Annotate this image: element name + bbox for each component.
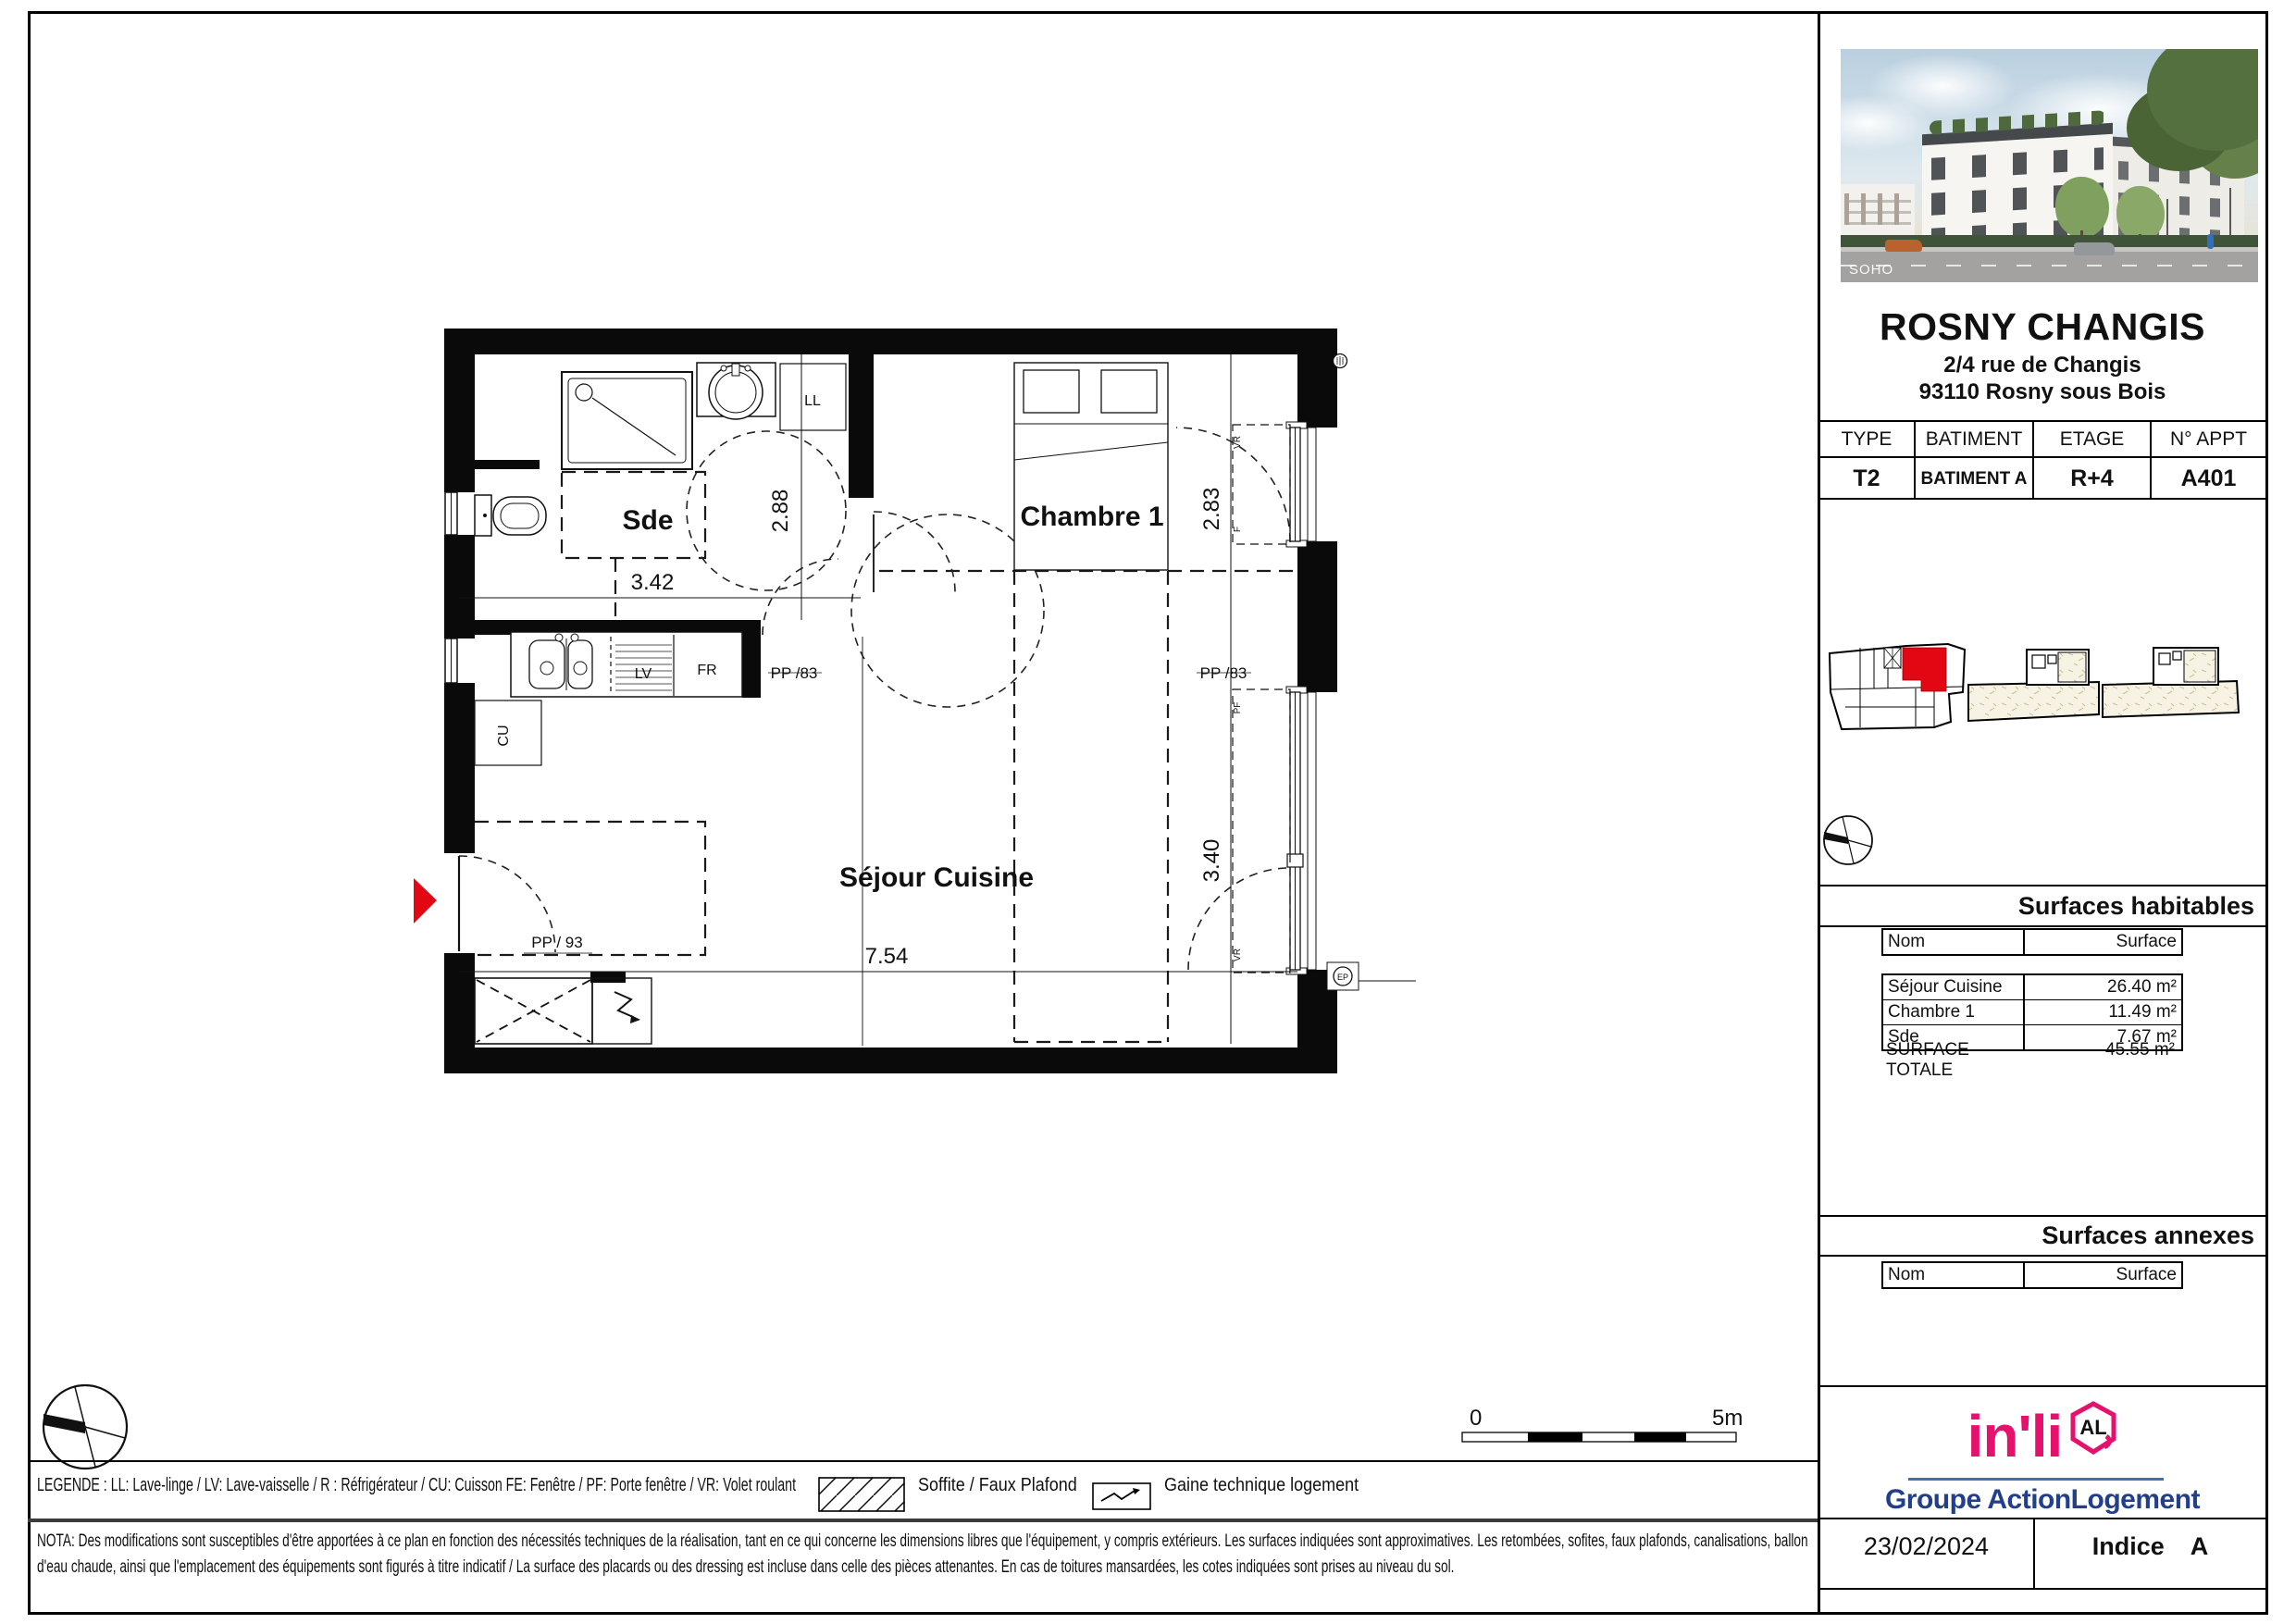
car [2074, 242, 2115, 255]
indice-value: A [2191, 1532, 2209, 1560]
row-nom: Chambre 1 [1883, 1000, 2023, 1024]
entrance-arrow-icon [414, 878, 437, 924]
gaine-swatch-icon [1092, 1482, 1151, 1510]
street-light [2229, 188, 2231, 240]
window-toilet [445, 492, 457, 535]
surface-totale-row: SURFACE TOTALE 45.55 m² [1881, 1040, 2183, 1081]
key-plan-compass-icon [1824, 816, 1872, 864]
surfaces-annexes-title: Surfaces annexes [1819, 1221, 2265, 1250]
section-line [1819, 885, 2265, 886]
label-ll: LL [804, 393, 821, 409]
label-cu: CU [496, 725, 512, 746]
project-title: ROSNY CHANGIS [1819, 305, 2265, 349]
indice-label: Indice [2092, 1532, 2165, 1560]
door-label-pp93: PP / 93 [531, 934, 582, 951]
toilet [475, 495, 546, 536]
scale-end: 5m [1712, 1406, 1743, 1431]
group-name: Groupe ActionLogement [1819, 1484, 2265, 1516]
vent-symbol [1334, 354, 1347, 368]
info-header-etage: ETAGE [2034, 422, 2152, 458]
info-value-batiment: BATIMENT A [1916, 458, 2034, 500]
panel-divider [1818, 11, 1820, 1615]
label-f-chambre: F [1233, 527, 1243, 532]
plan-date: 23/02/2024 [1819, 1532, 2033, 1561]
nota-top-line [28, 1519, 1818, 1522]
dim-754: 7.54 [865, 944, 909, 969]
gaine-technique-box [475, 978, 652, 1044]
project-address: 2/4 rue de Changis 93110 Rosny sous Bois [1819, 352, 2265, 405]
washbasin [697, 363, 776, 419]
label-vr-sejour: VR [1233, 948, 1243, 961]
nota-text: NOTA: Des modifications sont susceptible… [37, 1529, 1809, 1581]
dim-340: 3.40 [1199, 839, 1224, 883]
soffite-label: Soffite / Faux Plafond [918, 1475, 1077, 1496]
info-header-batiment: BATIMENT [1916, 422, 2034, 458]
surfaces-habitables-title: Surfaces habitables [1819, 892, 2265, 921]
north-compass-icon [43, 1385, 127, 1469]
total-label: SURFACE TOTALE [1881, 1040, 2021, 1081]
legend-text: LEGENDE : LL: Lave-linge / LV: Lave-vais… [37, 1475, 813, 1496]
dim-283: 2.83 [1199, 488, 1224, 531]
surfaces-habitables-header: Nom Surface [1881, 928, 2183, 956]
section-line [1819, 1215, 2265, 1217]
room-label-sde: Sde [622, 505, 673, 536]
inli-logo: in'li AL [1819, 1394, 2265, 1479]
label-pf-sejour: PF [1233, 702, 1243, 714]
indice: IndiceA [2035, 1532, 2265, 1561]
scale-bar: 0 5m [1462, 1406, 1743, 1442]
floorplan-sheet: Sde Chambre 1 Séjour Cuisine 3.42 2.88 2… [0, 0, 2296, 1624]
bed [1014, 363, 1168, 570]
address-line1: 2/4 rue de Changis [1819, 352, 2265, 378]
door-label-pp83-a: PP /83 [771, 664, 818, 682]
window-kitchen [445, 638, 457, 683]
kitchen-counter [475, 632, 742, 765]
building-photo: SOHO [1841, 49, 2258, 282]
row-surface: 26.40 m² [2023, 975, 2181, 999]
window-sejour-pf [1233, 687, 1316, 974]
label-fr: FR [697, 663, 716, 678]
col-surface: Surface [2023, 1263, 2181, 1287]
footer-line [1819, 1518, 2265, 1519]
shower [562, 372, 692, 469]
tree [2116, 186, 2165, 242]
tree [2055, 177, 2109, 238]
section-line [1819, 1255, 2265, 1257]
al-badge-icon: AL [2069, 1401, 2117, 1455]
cyclist [2207, 234, 2214, 249]
info-header-appt: N° APPT [2152, 422, 2265, 458]
room-label-chambre: Chambre 1 [1020, 502, 1163, 532]
total-value: 45.55 m² [2021, 1040, 2179, 1081]
section-line [1819, 925, 2265, 927]
door-label-pp83-b: PP /83 [1200, 664, 1247, 682]
legend-top-line [28, 1460, 1818, 1462]
inli-wordmark: in'li [1967, 1402, 2063, 1470]
label-lv: LV [635, 666, 652, 682]
table-row: Chambre 1 11.49 m² [1883, 999, 2181, 1024]
surfaces-annexes-header: Nom Surface [1881, 1261, 2183, 1289]
section-line [1819, 1385, 2265, 1387]
info-value-type: T2 [1819, 458, 1916, 500]
label-ep: EP [1337, 973, 1348, 982]
gaine-label: Gaine technique logement [1164, 1475, 1359, 1496]
col-surface: Surface [2023, 930, 2181, 954]
scale-start: 0 [1470, 1406, 1482, 1431]
dim-342: 3.42 [631, 570, 675, 595]
soffite-swatch-icon [818, 1477, 905, 1512]
address-line2: 93110 Rosny sous Bois [1819, 378, 2265, 405]
col-nom: Nom [1883, 1263, 2023, 1287]
street-light [2166, 199, 2168, 240]
row-nom: Séjour Cuisine [1883, 975, 2023, 999]
key-plan [1824, 644, 2239, 864]
label-vr-chambre: VR [1233, 436, 1243, 449]
photo-watermark: SOHO [1849, 262, 1893, 278]
road [1841, 252, 2258, 282]
room-label-sejour: Séjour Cuisine [839, 862, 1034, 893]
apartment-info-table: TYPE BATIMENT ETAGE N° APPT T2 BATIMENT … [1819, 420, 2265, 500]
row-surface: 11.49 m² [2023, 1000, 2181, 1024]
dim-288: 2.88 [768, 490, 793, 533]
col-nom: Nom [1883, 930, 2023, 954]
logo-underline [1908, 1478, 2164, 1481]
info-value-etage: R+4 [2034, 458, 2152, 500]
info-value-appt: A401 [2152, 458, 2265, 500]
info-header-type: TYPE [1819, 422, 1916, 458]
al-badge-text: AL [2080, 1416, 2107, 1439]
table-row: Séjour Cuisine 26.40 m² [1883, 975, 2181, 999]
car [1885, 240, 1922, 252]
footer-line [1819, 1588, 2265, 1590]
